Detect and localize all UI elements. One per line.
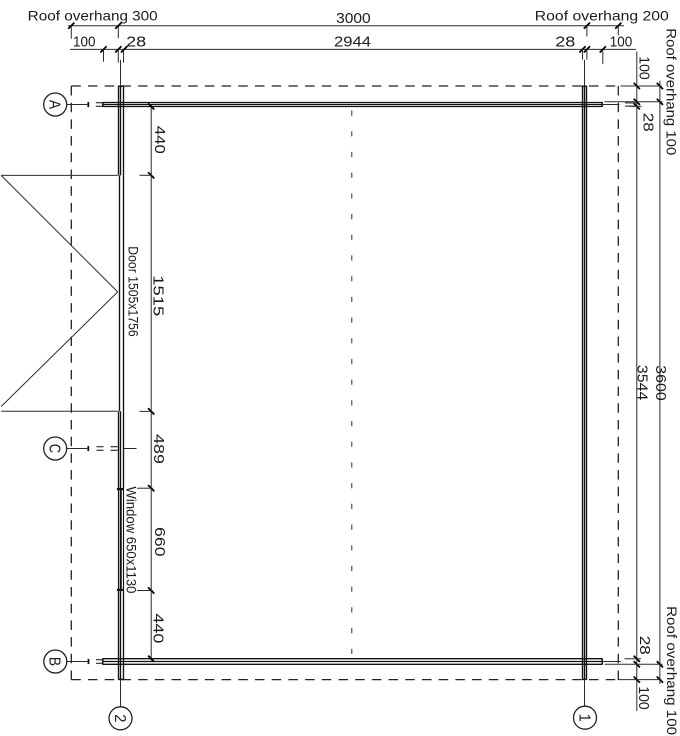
svg-text:489: 489 xyxy=(150,434,166,464)
svg-text:28: 28 xyxy=(126,35,146,51)
svg-text:440: 440 xyxy=(151,126,167,154)
svg-text:Roof overhang 100: Roof overhang 100 xyxy=(664,606,680,735)
svg-text:Roof overhang 200: Roof overhang 200 xyxy=(535,8,669,24)
svg-text:440: 440 xyxy=(150,613,166,643)
svg-text:C: C xyxy=(46,444,63,453)
svg-text:1515: 1515 xyxy=(150,275,166,316)
svg-text:100: 100 xyxy=(635,686,651,710)
svg-text:3600: 3600 xyxy=(652,365,668,400)
svg-text:28: 28 xyxy=(636,636,652,655)
svg-text:B: B xyxy=(46,657,63,666)
svg-text:100: 100 xyxy=(610,35,633,51)
svg-text:100: 100 xyxy=(636,56,652,80)
svg-text:Roof overhang 100: Roof overhang 100 xyxy=(663,28,679,155)
svg-text:1: 1 xyxy=(575,714,592,722)
svg-text:28: 28 xyxy=(639,113,655,132)
svg-text:100: 100 xyxy=(73,35,96,51)
svg-text:Door 1505x1756: Door 1505x1756 xyxy=(125,246,141,337)
svg-text:Roof overhang 300: Roof overhang 300 xyxy=(28,8,158,24)
svg-text:A: A xyxy=(46,100,63,110)
svg-text:2: 2 xyxy=(111,714,128,722)
svg-text:2944: 2944 xyxy=(334,35,371,51)
svg-text:Window 650x1130: Window 650x1130 xyxy=(124,487,140,594)
svg-text:28: 28 xyxy=(555,35,575,51)
svg-text:3544: 3544 xyxy=(633,365,649,400)
svg-text:3000: 3000 xyxy=(336,11,371,27)
svg-text:660: 660 xyxy=(151,527,167,557)
